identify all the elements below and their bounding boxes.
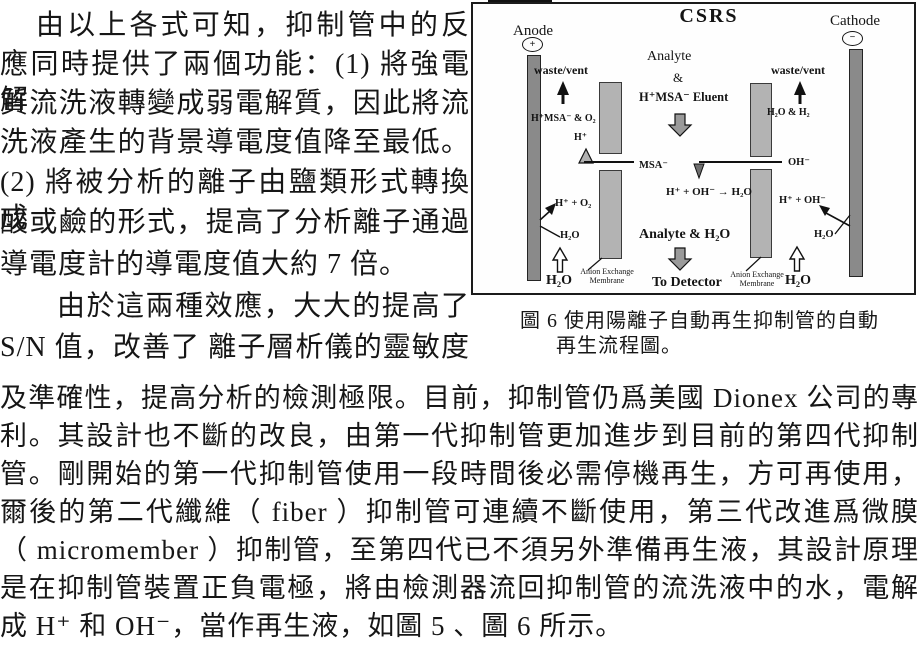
left-waste-vent-label: waste/vent: [534, 63, 588, 78]
up-arrow-icon: [557, 81, 569, 104]
diagram-arrows-layer: [473, 4, 914, 293]
water-in-up-arrow-icon: [790, 247, 804, 271]
figure-caption-line2: 再生流程圖。: [556, 329, 682, 358]
body-text-line: 利。其設計也不斷的改良，由第一代抑制管更加進步到目前的第四代抑制: [0, 418, 919, 454]
neutralization-reaction-label: H⁺ + OH⁻ → H₂O: [666, 185, 752, 198]
body-text-line: (2) 將被分析的離子由鹽類形式轉換成: [0, 165, 470, 201]
right-membrane-label: Anion Exchange Membrane: [722, 270, 792, 288]
body-text-line: 由於這兩種效應，大大的提高了: [0, 289, 470, 325]
right-out-species-label: H₂O & H₂: [767, 107, 810, 118]
right-waste-vent-label: waste/vent: [771, 63, 825, 78]
body-text-line: 管。剛開始的第一代抑制管使用一段時間後必需停機再生，方可再使用，: [0, 456, 919, 492]
block-down-arrow-icon: [669, 114, 691, 136]
body-text-line: 洗液產生的背景導電度值降至最低。: [0, 125, 470, 161]
right-electrode-reaction-label: H⁺ + OH⁻: [779, 194, 826, 206]
body-text-line: 是在抑制管裝置正負電極，將由檢測器流回抑制管的流洗液中的水，電解: [0, 570, 919, 606]
left-water-mid-label: H₂O: [560, 230, 579, 241]
left-out-species-label: H⁺MSA⁻ & O₂: [531, 113, 596, 124]
ampersand-label: &: [673, 70, 683, 86]
body-text-line: （ micromember ）抑制管，至第四代已不須另外準備再生液，其設計原理: [0, 532, 919, 568]
msa-ion-label: MSA⁻: [639, 159, 668, 171]
to-detector-label: To Detector: [652, 275, 722, 291]
body-text-line: 成 H⁺ 和 OH⁻，當作再生液，如圖 5 、圖 6 所示。: [0, 608, 919, 644]
body-text-line: 質流洗液轉變成弱電解質，因此將流: [0, 86, 470, 122]
body-text-line: 及準確性，提高分析的檢測極限。目前，抑制管仍爲美國 Dionex 公司的專: [0, 380, 919, 416]
body-text-line: 應同時提供了兩個功能：(1) 將強電解: [0, 47, 470, 83]
h-ion-label: H⁺: [574, 132, 587, 143]
left-electrode-reaction-label: H⁺ + O₂: [555, 197, 591, 209]
body-text-line: 由以上各式可知，抑制管中的反: [0, 8, 470, 44]
membrane-label-line: Membrane: [722, 279, 792, 288]
body-text-line: 爾後的第二代纖維（ fiber ）抑制管可連續不斷使用，第三代改進爲微膜: [0, 494, 919, 530]
body-text-line: 酸或鹼的形式，提高了分析離子通過: [0, 205, 470, 241]
membrane-label-line: Anion Exchange: [572, 267, 642, 276]
right-water-mid-label: H₂O: [814, 229, 833, 240]
figure-6-diagram: CSRS Anode + Cathode −: [471, 2, 916, 295]
membrane-label-line: Anion Exchange: [722, 270, 792, 279]
membrane-pointer-line: [746, 257, 761, 271]
left-membrane-label: Anion Exchange Membrane: [572, 267, 642, 285]
body-text-line: S/N 值，改善了 離子層析儀的靈敏度: [0, 330, 470, 366]
analyte-out-label: Analyte & H₂O: [639, 227, 730, 243]
block-down-arrow-icon: [669, 248, 691, 270]
eluent-label: H⁺MSA⁻ Eluent: [639, 89, 728, 105]
analyte-label: Analyte: [647, 49, 691, 65]
h-ion-up-triangle-icon: [579, 149, 593, 163]
body-text-line: 導電度計的導電度值大約 7 倍。: [0, 247, 470, 283]
left-water-in-label: H₂O: [546, 273, 572, 289]
oh-ion-down-triangle-icon: [694, 164, 704, 178]
membrane-label-line: Membrane: [572, 276, 642, 285]
water-in-up-arrow-icon: [553, 248, 567, 272]
up-arrow-icon: [794, 81, 806, 104]
oh-ion-label: OH⁻: [788, 156, 810, 168]
